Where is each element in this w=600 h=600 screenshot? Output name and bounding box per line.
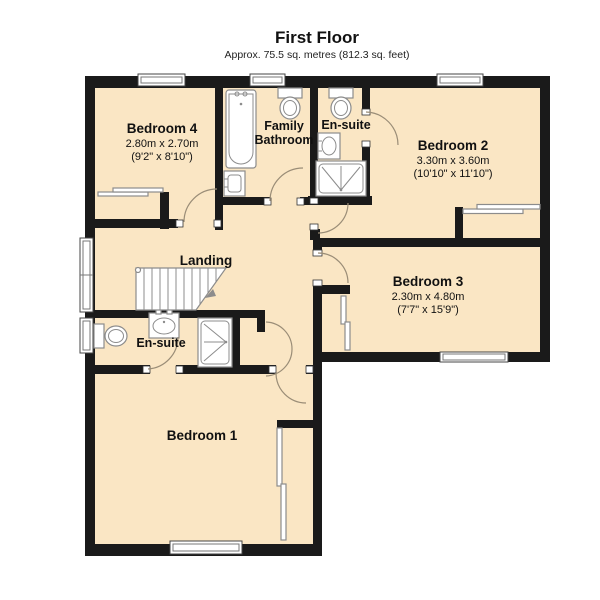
bathtub [226,90,256,168]
window-ensuite-left [80,318,93,353]
label-bedroom2: Bedroom 2 3.30m x 3.60m (10'10" x 11'10"… [413,138,492,180]
shower-ensuite-bottom [198,318,232,367]
label-bedroom1: Bedroom 1 [167,428,238,443]
wall-corridor-left-stub [257,310,265,332]
label-bedroom4: Bedroom 4 2.80m x 2.70m (9'2" x 8'10") [126,121,199,163]
window-bathroom-top [250,74,285,86]
window-bedroom4-top [138,74,185,86]
svg-text:En-suite: En-suite [136,336,185,350]
sink-ensuite-bottom [149,309,179,338]
label-ensuite-top: En-suite [321,118,370,132]
svg-text:Bedroom 2: Bedroom 2 [418,138,489,153]
svg-text:Bathroom: Bathroom [254,133,313,147]
wall-landing-ensuite-divider [95,310,265,318]
page-title: First Floor [275,28,359,47]
toilet-family-bathroom [278,88,302,119]
label-bedroom3: Bedroom 3 2.30m x 4.80m (7'7" x 15'9") [392,274,465,316]
svg-text:2.80m x 2.70m: 2.80m x 2.70m [126,138,199,150]
label-ensuite-bottom: En-suite [136,336,185,350]
wall-b1-wardrobe-top [277,420,313,428]
sink-ensuite-top [318,133,340,159]
svg-text:Bedroom 3: Bedroom 3 [393,274,464,289]
wall-bedroom1-top-left [95,365,150,374]
page-subtitle: Approx. 75.5 sq. metres (812.3 sq. feet) [224,49,409,61]
wall-shower-right [232,318,240,368]
svg-text:En-suite: En-suite [321,118,370,132]
sink-family-bathroom [224,171,245,196]
wall-corridor-right-lower [313,285,322,352]
svg-text:3.30m x 3.60m: 3.30m x 3.60m [417,155,490,167]
wall-bathroom-left [215,88,223,230]
svg-text:Landing: Landing [180,253,233,268]
wall-bedroom2-3-divider [313,238,540,247]
window-bedroom1-bottom [170,541,242,554]
label-landing: Landing [180,253,233,268]
svg-text:(10'10" x 11'10"): (10'10" x 11'10") [413,168,492,180]
svg-text:Bedroom 4: Bedroom 4 [127,121,198,136]
svg-text:2.30m x 4.80m: 2.30m x 4.80m [392,291,465,303]
floorplan-page: First Floor Approx. 75.5 sq. metres (812… [0,0,600,600]
window-landing-left [80,238,93,312]
shower-ensuite-top [316,161,366,196]
svg-text:(7'7" x 15'9"): (7'7" x 15'9") [397,304,459,316]
wall-bathroom-bottom [222,197,270,205]
toilet-ensuite-bottom [94,324,127,348]
toilet-ensuite-top [329,88,353,119]
wall-b2-wardrobe-left [455,207,463,238]
svg-text:Family: Family [264,119,304,133]
floorplan-canvas: First Floor Approx. 75.5 sq. metres (812… [0,0,600,600]
wall-landing-top [95,219,178,228]
svg-text:(9'2" x 8'10"): (9'2" x 8'10") [131,151,193,163]
window-bedroom3-bottom [440,352,508,362]
svg-text:Bedroom 1: Bedroom 1 [167,428,238,443]
window-bedroom2-top [437,74,483,86]
